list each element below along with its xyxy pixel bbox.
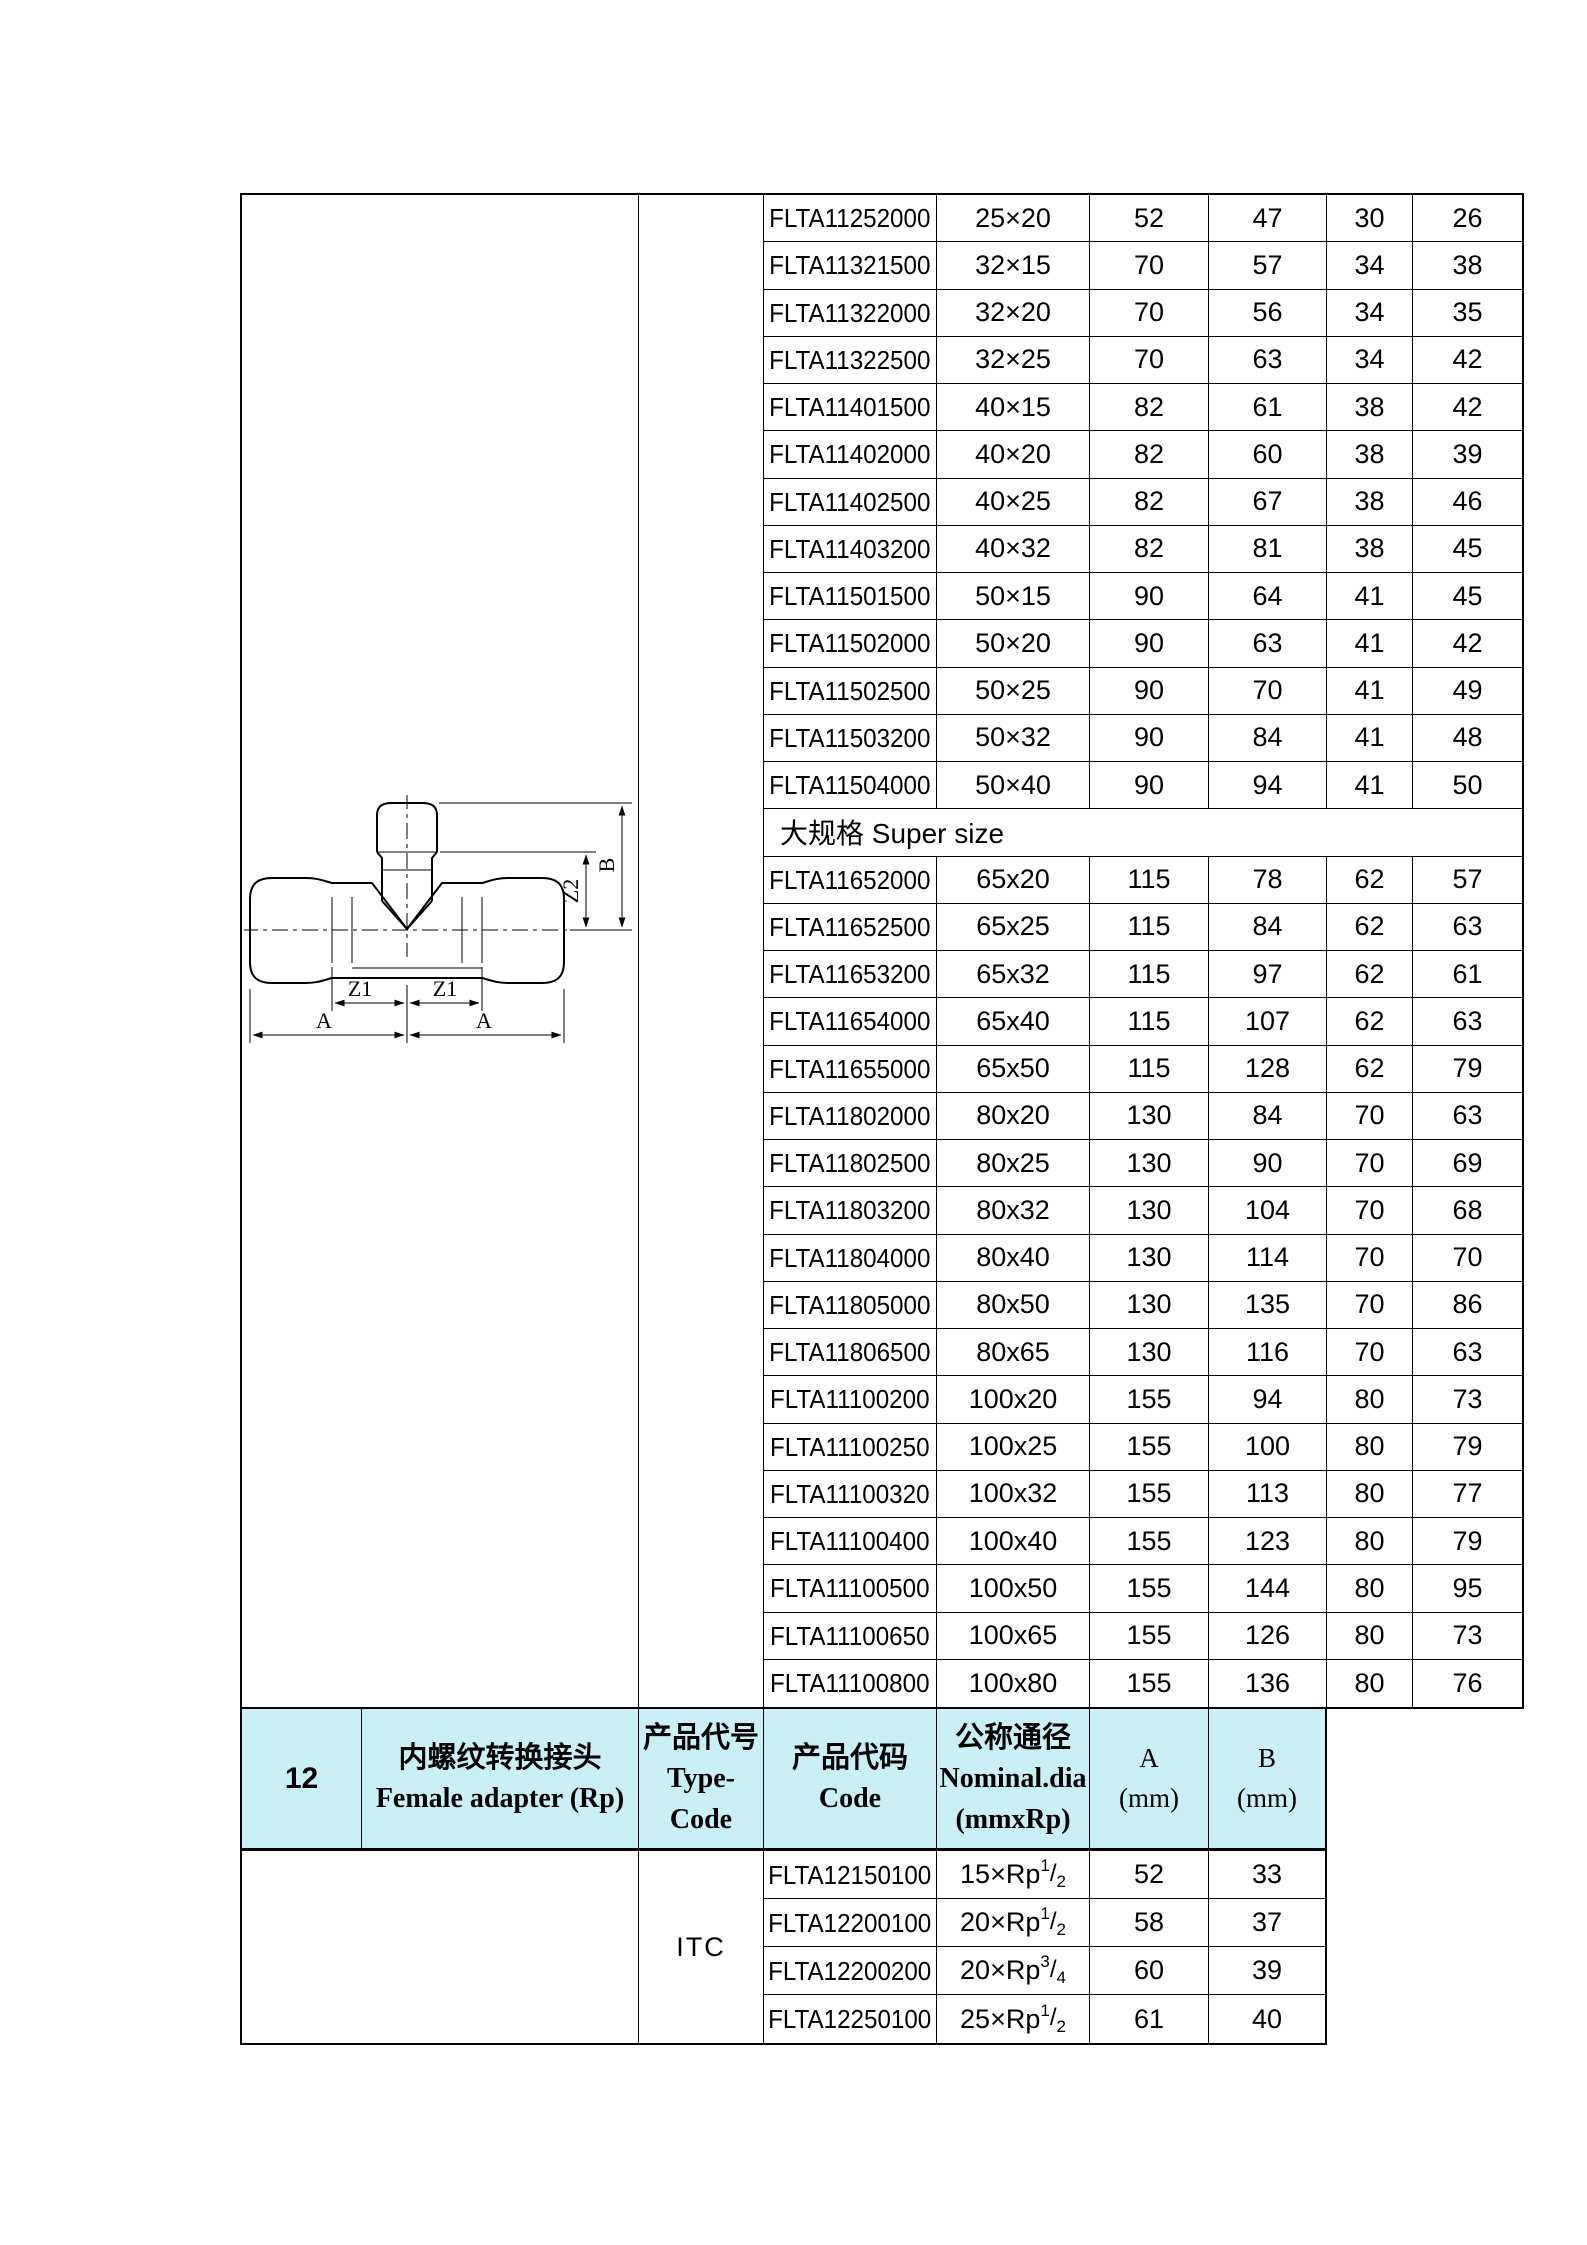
size-cell: 80x25 bbox=[937, 1140, 1090, 1187]
dim-z2-cell: 79 bbox=[1413, 1046, 1522, 1093]
product-code-cell: FLTA11804000 bbox=[764, 1235, 937, 1282]
nominal-size-cell: 20×Rp1/2 bbox=[937, 1899, 1090, 1947]
size-cell: 40×15 bbox=[937, 384, 1090, 431]
size-cell: 40×25 bbox=[937, 479, 1090, 526]
dim-z1-cell: 80 bbox=[1327, 1424, 1413, 1471]
product-name-cn: 内螺纹转换接头 bbox=[398, 1737, 601, 1779]
dim-b-cell: 135 bbox=[1209, 1282, 1327, 1329]
dim-z2-cell: 79 bbox=[1413, 1518, 1522, 1565]
dim-b-cell: 104 bbox=[1209, 1187, 1327, 1234]
dim-b-cell: 123 bbox=[1209, 1518, 1327, 1565]
nominal-dia-unit: (mmxRp) bbox=[955, 1800, 1070, 1841]
size-cell: 100x20 bbox=[937, 1376, 1090, 1423]
dim-a-cell: 130 bbox=[1090, 1140, 1209, 1187]
size-cell: 50×20 bbox=[937, 620, 1090, 667]
dim-z1-cell: 62 bbox=[1327, 857, 1413, 904]
col-a-unit: (mm) bbox=[1119, 1779, 1179, 1818]
product-code-cell: FLTA11802000 bbox=[764, 1093, 937, 1140]
product-code-header: 产品代码 Code bbox=[764, 1709, 937, 1851]
product-code-cell: FLTA11803200 bbox=[764, 1187, 937, 1234]
dim-z2-cell: 48 bbox=[1413, 715, 1522, 762]
dim-b-cell: 116 bbox=[1209, 1329, 1327, 1376]
dim-z1-cell: 41 bbox=[1327, 668, 1413, 715]
dim-b-cell: 113 bbox=[1209, 1471, 1327, 1518]
dim-a-cell: 90 bbox=[1090, 668, 1209, 715]
product-code-cell: FLTA12200100 bbox=[764, 1899, 937, 1947]
size-cell: 50×32 bbox=[937, 715, 1090, 762]
empty-cell bbox=[242, 1851, 639, 2043]
dim-a-cell: 61 bbox=[1090, 1995, 1209, 2043]
dim-a-cell: 155 bbox=[1090, 1376, 1209, 1423]
dim-z2-cell: 45 bbox=[1413, 573, 1522, 620]
type-code-value-cell: ITC bbox=[639, 1851, 764, 2043]
dim-z1-cell: 80 bbox=[1327, 1660, 1413, 1707]
dim-a-cell: 115 bbox=[1090, 857, 1209, 904]
dim-z1-cell: 41 bbox=[1327, 762, 1413, 809]
dim-z2-cell: 63 bbox=[1413, 1093, 1522, 1140]
size-cell: 100x50 bbox=[937, 1565, 1090, 1612]
product-code-cell: FLTA11802500 bbox=[764, 1140, 937, 1187]
dim-b-cell: 126 bbox=[1209, 1613, 1327, 1660]
dim-z2-cell: 69 bbox=[1413, 1140, 1522, 1187]
dim-b-cell: 144 bbox=[1209, 1565, 1327, 1612]
product-code-cell: FLTA11100250 bbox=[764, 1424, 937, 1471]
female-adapter-section: 12 内螺纹转换接头 Female adapter (Rp) 产品代号 Type… bbox=[240, 1709, 1327, 2045]
tee-drawing-cell: Z1 Z1 A A Z2 B bbox=[242, 195, 639, 1707]
dim-z2-cell: 26 bbox=[1413, 195, 1522, 242]
dim-a-cell: 155 bbox=[1090, 1424, 1209, 1471]
super-size-section-label: 大规格 Super size bbox=[764, 809, 1522, 856]
size-cell: 65x32 bbox=[937, 951, 1090, 998]
product-code-cell: FLTA11504000 bbox=[764, 762, 937, 809]
dim-b-cell: 128 bbox=[1209, 1046, 1327, 1093]
dim-z2-cell: 68 bbox=[1413, 1187, 1522, 1234]
dim-z2-cell: 73 bbox=[1413, 1613, 1522, 1660]
dim-z1-cell: 62 bbox=[1327, 951, 1413, 998]
nominal-dia-header: 公称通径 Nominal.dia (mmxRp) bbox=[937, 1709, 1090, 1851]
nominal-size-cell: 20×Rp3/4 bbox=[937, 1947, 1090, 1995]
dim-z1-cell: 70 bbox=[1327, 1235, 1413, 1282]
section-index-header: 12 bbox=[242, 1709, 362, 1851]
dim-z1-cell: 41 bbox=[1327, 715, 1413, 762]
product-code-cell: FLTA11322000 bbox=[764, 290, 937, 337]
dim-b-cell: 56 bbox=[1209, 290, 1327, 337]
dim-a-cell: 130 bbox=[1090, 1329, 1209, 1376]
dim-b-cell: 97 bbox=[1209, 951, 1327, 998]
dim-z2-cell: 46 bbox=[1413, 479, 1522, 526]
product-code-cell: FLTA11501500 bbox=[764, 573, 937, 620]
dim-b-cell: 100 bbox=[1209, 1424, 1327, 1471]
dim-z1-cell: 80 bbox=[1327, 1471, 1413, 1518]
section-index: 12 bbox=[285, 1757, 318, 1801]
b-label: B bbox=[594, 858, 619, 873]
dim-a-cell: 155 bbox=[1090, 1565, 1209, 1612]
product-code-cell: FLTA11322500 bbox=[764, 337, 937, 384]
type-code-header-cn: 产品代号 bbox=[643, 1717, 759, 1759]
dim-z1-cell: 62 bbox=[1327, 998, 1413, 1045]
product-code-cell: FLTA11100800 bbox=[764, 1660, 937, 1707]
female-adapter-table: 12 内螺纹转换接头 Female adapter (Rp) 产品代号 Type… bbox=[242, 1709, 1325, 2043]
dim-b-cell: 67 bbox=[1209, 479, 1327, 526]
dim-a-cell: 115 bbox=[1090, 1046, 1209, 1093]
tee-table: Z1 Z1 A A Z2 B FLTA1125200025×2052473026… bbox=[242, 195, 1522, 1707]
col-a-label: A bbox=[1139, 1739, 1159, 1778]
dim-z1-cell: 80 bbox=[1327, 1376, 1413, 1423]
dim-z1-cell: 38 bbox=[1327, 526, 1413, 573]
z1-left-label: Z1 bbox=[348, 976, 372, 1001]
dim-z1-cell: 34 bbox=[1327, 337, 1413, 384]
z1-right-label: Z1 bbox=[433, 976, 457, 1001]
dim-z2-cell: 63 bbox=[1413, 1329, 1522, 1376]
nominal-size-cell: 25×Rp1/2 bbox=[937, 1995, 1090, 2043]
col-b-header: B (mm) bbox=[1209, 1709, 1325, 1851]
product-name-header: 内螺纹转换接头 Female adapter (Rp) bbox=[362, 1709, 639, 1851]
product-code-cell: FLTA12150100 bbox=[764, 1851, 937, 1899]
size-cell: 50×25 bbox=[937, 668, 1090, 715]
dim-a-cell: 82 bbox=[1090, 431, 1209, 478]
dim-b-cell: 40 bbox=[1209, 1995, 1325, 2043]
product-code-cell: FLTA11252000 bbox=[764, 195, 937, 242]
dim-a-cell: 130 bbox=[1090, 1282, 1209, 1329]
dim-z2-cell: 42 bbox=[1413, 337, 1522, 384]
size-cell: 100x80 bbox=[937, 1660, 1090, 1707]
size-cell: 32×15 bbox=[937, 242, 1090, 289]
product-code-cell: FLTA12250100 bbox=[764, 1995, 937, 2043]
dim-a-cell: 90 bbox=[1090, 715, 1209, 762]
dim-b-cell: 37 bbox=[1209, 1899, 1325, 1947]
product-code-cell: FLTA11401500 bbox=[764, 384, 937, 431]
product-code-cell: FLTA11100320 bbox=[764, 1471, 937, 1518]
dim-b-cell: 84 bbox=[1209, 715, 1327, 762]
dim-b-cell: 39 bbox=[1209, 1947, 1325, 1995]
dim-z2-cell: 42 bbox=[1413, 384, 1522, 431]
z2-label: Z2 bbox=[558, 879, 583, 903]
size-cell: 100x32 bbox=[937, 1471, 1090, 1518]
dim-b-cell: 136 bbox=[1209, 1660, 1327, 1707]
size-cell: 50×40 bbox=[937, 762, 1090, 809]
product-code-cell: FLTA11806500 bbox=[764, 1329, 937, 1376]
dim-z1-cell: 70 bbox=[1327, 1329, 1413, 1376]
dim-a-cell: 130 bbox=[1090, 1093, 1209, 1140]
dim-b-cell: 70 bbox=[1209, 668, 1327, 715]
product-code-cell: FLTA11321500 bbox=[764, 242, 937, 289]
col-b-label: B bbox=[1258, 1739, 1276, 1778]
dim-a-cell: 82 bbox=[1090, 526, 1209, 573]
dim-a-cell: 115 bbox=[1090, 998, 1209, 1045]
size-cell: 80x50 bbox=[937, 1282, 1090, 1329]
dim-b-cell: 94 bbox=[1209, 1376, 1327, 1423]
dim-z1-cell: 62 bbox=[1327, 904, 1413, 951]
tee-table-section: Z1 Z1 A A Z2 B FLTA1125200025×2052473026… bbox=[240, 193, 1524, 1709]
dim-a-cell: 82 bbox=[1090, 384, 1209, 431]
dim-z2-cell: 57 bbox=[1413, 857, 1522, 904]
product-code-cell: FLTA11502000 bbox=[764, 620, 937, 667]
catalog-page: Z1 Z1 A A Z2 B FLTA1125200025×2052473026… bbox=[0, 0, 1587, 2245]
dim-z1-cell: 41 bbox=[1327, 620, 1413, 667]
dim-z2-cell: 70 bbox=[1413, 1235, 1522, 1282]
dim-b-cell: 64 bbox=[1209, 573, 1327, 620]
dim-b-cell: 61 bbox=[1209, 384, 1327, 431]
size-cell: 80x32 bbox=[937, 1187, 1090, 1234]
dim-a-cell: 155 bbox=[1090, 1518, 1209, 1565]
size-cell: 65x25 bbox=[937, 904, 1090, 951]
dim-a-cell: 115 bbox=[1090, 951, 1209, 998]
dim-b-cell: 114 bbox=[1209, 1235, 1327, 1282]
dim-z1-cell: 70 bbox=[1327, 1140, 1413, 1187]
dim-z2-cell: 77 bbox=[1413, 1471, 1522, 1518]
product-code-cell: FLTA11502500 bbox=[764, 668, 937, 715]
product-code-cell: FLTA11100650 bbox=[764, 1613, 937, 1660]
dim-z2-cell: 42 bbox=[1413, 620, 1522, 667]
dim-a-cell: 70 bbox=[1090, 337, 1209, 384]
dim-z1-cell: 70 bbox=[1327, 1187, 1413, 1234]
dim-z2-cell: 73 bbox=[1413, 1376, 1522, 1423]
product-code-cell: FLTA11652500 bbox=[764, 904, 937, 951]
dim-z2-cell: 35 bbox=[1413, 290, 1522, 337]
product-code-cell: FLTA11503200 bbox=[764, 715, 937, 762]
product-code-cell: FLTA11654000 bbox=[764, 998, 937, 1045]
size-cell: 25×20 bbox=[937, 195, 1090, 242]
dim-a-cell: 52 bbox=[1090, 195, 1209, 242]
dim-z1-cell: 38 bbox=[1327, 479, 1413, 526]
product-code-cell: FLTA11402500 bbox=[764, 479, 937, 526]
size-cell: 40×20 bbox=[937, 431, 1090, 478]
product-name-en: Female adapter (Rp) bbox=[376, 1779, 624, 1820]
dim-b-cell: 81 bbox=[1209, 526, 1327, 573]
product-code-cell: FLTA11402000 bbox=[764, 431, 937, 478]
dim-z2-cell: 49 bbox=[1413, 668, 1522, 715]
dim-b-cell: 63 bbox=[1209, 337, 1327, 384]
col-a-header: A (mm) bbox=[1090, 1709, 1209, 1851]
dim-z1-cell: 70 bbox=[1327, 1282, 1413, 1329]
dim-b-cell: 60 bbox=[1209, 431, 1327, 478]
dim-z1-cell: 41 bbox=[1327, 573, 1413, 620]
product-code-cell: FLTA12200200 bbox=[764, 1947, 937, 1995]
size-cell: 65x20 bbox=[937, 857, 1090, 904]
dim-a-cell: 155 bbox=[1090, 1471, 1209, 1518]
dim-z1-cell: 34 bbox=[1327, 290, 1413, 337]
nominal-size-cell: 15×Rp1/2 bbox=[937, 1851, 1090, 1899]
dim-z2-cell: 95 bbox=[1413, 1565, 1522, 1612]
dim-z1-cell: 80 bbox=[1327, 1613, 1413, 1660]
dim-a-cell: 70 bbox=[1090, 290, 1209, 337]
product-code-cell: FLTA11652000 bbox=[764, 857, 937, 904]
product-code-cell: FLTA11100500 bbox=[764, 1565, 937, 1612]
size-cell: 65x40 bbox=[937, 998, 1090, 1045]
dim-z1-cell: 34 bbox=[1327, 242, 1413, 289]
dim-b-cell: 84 bbox=[1209, 1093, 1327, 1140]
size-cell: 32×20 bbox=[937, 290, 1090, 337]
nominal-dia-cn: 公称通径 bbox=[955, 1717, 1071, 1759]
dim-z2-cell: 86 bbox=[1413, 1282, 1522, 1329]
dim-a-cell: 130 bbox=[1090, 1235, 1209, 1282]
product-code-header-en: Code bbox=[819, 1779, 881, 1820]
type-code-header: 产品代号 Type-Code bbox=[639, 1709, 764, 1851]
a-left-label: A bbox=[316, 1008, 332, 1033]
size-cell: 100x25 bbox=[937, 1424, 1090, 1471]
product-code-cell: FLTA11805000 bbox=[764, 1282, 937, 1329]
dim-z1-cell: 80 bbox=[1327, 1565, 1413, 1612]
dim-z2-cell: 63 bbox=[1413, 904, 1522, 951]
dim-b-cell: 47 bbox=[1209, 195, 1327, 242]
product-code-cell: FLTA11655000 bbox=[764, 1046, 937, 1093]
product-code-cell: FLTA11403200 bbox=[764, 526, 937, 573]
dim-b-cell: 57 bbox=[1209, 242, 1327, 289]
dim-a-cell: 155 bbox=[1090, 1613, 1209, 1660]
type-code-empty-cell bbox=[639, 195, 764, 1707]
dim-z1-cell: 70 bbox=[1327, 1093, 1413, 1140]
dim-z1-cell: 62 bbox=[1327, 1046, 1413, 1093]
dim-z1-cell: 38 bbox=[1327, 384, 1413, 431]
dim-z2-cell: 79 bbox=[1413, 1424, 1522, 1471]
a-right-label: A bbox=[476, 1008, 492, 1033]
dim-z2-cell: 38 bbox=[1413, 242, 1522, 289]
dim-b-cell: 90 bbox=[1209, 1140, 1327, 1187]
dim-z2-cell: 45 bbox=[1413, 526, 1522, 573]
size-cell: 65x50 bbox=[937, 1046, 1090, 1093]
dim-z2-cell: 61 bbox=[1413, 951, 1522, 998]
dim-b-cell: 78 bbox=[1209, 857, 1327, 904]
dim-a-cell: 82 bbox=[1090, 479, 1209, 526]
product-code-cell: FLTA11100400 bbox=[764, 1518, 937, 1565]
dim-a-cell: 130 bbox=[1090, 1187, 1209, 1234]
size-cell: 40×32 bbox=[937, 526, 1090, 573]
dim-b-cell: 33 bbox=[1209, 1851, 1325, 1899]
size-cell: 80x40 bbox=[937, 1235, 1090, 1282]
dim-a-cell: 52 bbox=[1090, 1851, 1209, 1899]
size-cell: 50×15 bbox=[937, 573, 1090, 620]
dim-b-cell: 84 bbox=[1209, 904, 1327, 951]
dim-a-cell: 90 bbox=[1090, 620, 1209, 667]
size-cell: 80x20 bbox=[937, 1093, 1090, 1140]
dim-a-cell: 90 bbox=[1090, 762, 1209, 809]
dim-a-cell: 90 bbox=[1090, 573, 1209, 620]
nominal-dia-en: Nominal.dia bbox=[939, 1759, 1086, 1800]
product-code-cell: FLTA11653200 bbox=[764, 951, 937, 998]
product-code-cell: FLTA11100200 bbox=[764, 1376, 937, 1423]
col-b-unit: (mm) bbox=[1237, 1779, 1297, 1818]
dim-z2-cell: 76 bbox=[1413, 1660, 1522, 1707]
dim-z1-cell: 38 bbox=[1327, 431, 1413, 478]
dim-b-cell: 63 bbox=[1209, 620, 1327, 667]
product-code-header-cn: 产品代码 bbox=[792, 1737, 908, 1779]
dim-a-cell: 58 bbox=[1090, 1899, 1209, 1947]
dim-a-cell: 70 bbox=[1090, 242, 1209, 289]
dim-z1-cell: 30 bbox=[1327, 195, 1413, 242]
tee-fitting-drawing: Z1 Z1 A A Z2 B bbox=[244, 795, 650, 1051]
dim-a-cell: 115 bbox=[1090, 904, 1209, 951]
dim-z2-cell: 50 bbox=[1413, 762, 1522, 809]
size-cell: 100x40 bbox=[937, 1518, 1090, 1565]
dim-z2-cell: 63 bbox=[1413, 998, 1522, 1045]
dim-z2-cell: 39 bbox=[1413, 431, 1522, 478]
dim-a-cell: 60 bbox=[1090, 1947, 1209, 1995]
dim-b-cell: 94 bbox=[1209, 762, 1327, 809]
size-cell: 100x65 bbox=[937, 1613, 1090, 1660]
dim-b-cell: 107 bbox=[1209, 998, 1327, 1045]
dim-a-cell: 155 bbox=[1090, 1660, 1209, 1707]
type-code-header-en: Type-Code bbox=[639, 1759, 763, 1840]
size-cell: 32×25 bbox=[937, 337, 1090, 384]
size-cell: 80x65 bbox=[937, 1329, 1090, 1376]
dim-z1-cell: 80 bbox=[1327, 1518, 1413, 1565]
